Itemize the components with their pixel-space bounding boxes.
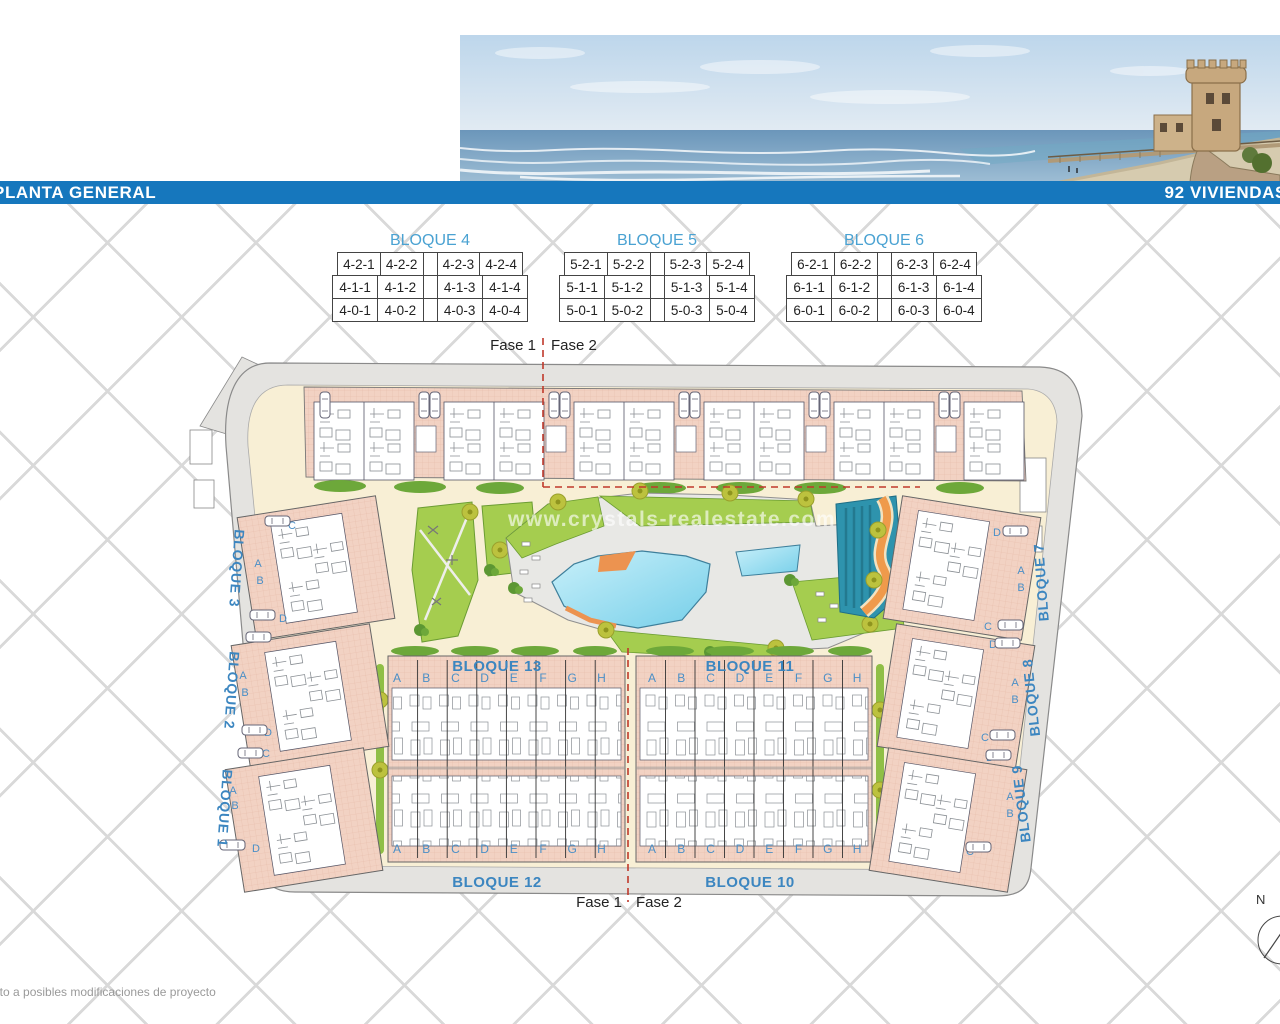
unit-cell: 4-1-4 <box>482 275 528 299</box>
bloque-12-label: BLOQUE 12 <box>452 874 542 891</box>
bloque-1-road-label: BLOQUE 1 <box>214 769 235 848</box>
unit-cell: 6-0-1 <box>786 298 832 322</box>
bloque-13-label: BLOQUE 13 <box>452 658 542 675</box>
unit-cell: 5-1-2 <box>604 275 650 299</box>
unit-cell: 5-0-3 <box>664 298 710 322</box>
unit-cell: 5-0-2 <box>604 298 650 322</box>
unit-letter-d: D <box>736 671 745 685</box>
bloque-5-grid: 5-2-15-2-25-2-35-2-45-1-15-1-25-1-35-1-4… <box>559 252 755 322</box>
townhouse-block-right <box>636 656 872 862</box>
utility-box <box>190 430 212 464</box>
unit-letter-f: F <box>795 671 802 685</box>
fase-1-label-top: Fase 1 <box>490 337 536 354</box>
unit-cell: 4-2-2 <box>380 252 424 276</box>
unit-letter-c: C <box>706 671 715 685</box>
unit-letter-a: A <box>648 842 656 856</box>
svg-text:B: B <box>1017 582 1024 594</box>
unit-letter-d: D <box>480 842 489 856</box>
fase-2-label-top: Fase 2 <box>551 337 597 354</box>
svg-text:D: D <box>252 843 260 855</box>
bloque-4-grid: 4-2-14-2-24-2-34-2-44-1-14-1-24-1-34-1-4… <box>332 252 528 322</box>
unit-letter-b: B <box>422 671 430 685</box>
unit-letter-b: B <box>422 842 430 856</box>
svg-text:B: B <box>256 575 263 587</box>
unit-letter-g: G <box>568 671 577 685</box>
side-block-2 <box>231 624 389 768</box>
unit-cell: 5-1-1 <box>559 275 605 299</box>
unit-letter-g: G <box>823 842 832 856</box>
table-spacer <box>877 252 892 276</box>
table-spacer <box>650 275 665 299</box>
viviendas-count: 92 VIVIENDAS <box>1165 183 1280 203</box>
unit-letter-d: D <box>480 671 489 685</box>
utility-box <box>194 480 214 508</box>
fase-2-label-bottom: Fase 2 <box>636 894 682 911</box>
table-spacer <box>423 252 438 276</box>
unit-cell: 6-0-4 <box>936 298 982 322</box>
phase-labels-bottom: Fase 1 Fase 2 <box>576 894 682 911</box>
table-spacer <box>423 298 438 322</box>
unit-letter-e: E <box>765 671 773 685</box>
table-spacer <box>877 275 892 299</box>
bloque-5-table: BLOQUE 5 5-2-15-2-25-2-35-2-45-1-15-1-25… <box>559 232 755 322</box>
unit-letter-e: E <box>510 842 518 856</box>
unit-letter-f: F <box>539 671 546 685</box>
unit-letter-g: G <box>823 671 832 685</box>
unit-letter-c: C <box>451 671 460 685</box>
unit-cell: 6-2-2 <box>834 252 878 276</box>
unit-letter-f: F <box>539 842 546 856</box>
page-title: PLANTA GENERAL <box>0 183 156 203</box>
site-plan: BLOQUE 13 BLOQUE 11 BLOQUE 12 BLOQUE 10 … <box>170 330 1140 920</box>
unit-letter-b: B <box>677 671 685 685</box>
svg-text:B: B <box>1006 808 1013 820</box>
unit-letter-f: F <box>795 842 802 856</box>
unit-letter-g: G <box>568 842 577 856</box>
unit-cell: 4-1-2 <box>377 275 423 299</box>
unit-cell: 4-0-4 <box>482 298 528 322</box>
unit-cell: 4-0-3 <box>437 298 483 322</box>
unit-cell: 4-2-4 <box>479 252 523 276</box>
unit-cell: 5-0-1 <box>559 298 605 322</box>
unit-letter-b: B <box>677 842 685 856</box>
table-spacer <box>423 275 438 299</box>
unit-cell: 4-2-3 <box>437 252 481 276</box>
unit-letter-a: A <box>393 842 401 856</box>
unit-cell: 6-1-3 <box>891 275 937 299</box>
svg-text:D: D <box>279 613 287 625</box>
unit-cell: 5-2-4 <box>706 252 750 276</box>
unit-cell: 5-2-3 <box>664 252 708 276</box>
unit-letter-h: H <box>853 842 862 856</box>
table-spacer <box>650 298 665 322</box>
unit-letter-a: A <box>648 671 656 685</box>
svg-text:A: A <box>254 558 262 570</box>
bloque-2-road-label: BLOQUE 2 <box>221 651 242 730</box>
unit-letter-h: H <box>597 842 606 856</box>
top-building-strip <box>304 387 1026 481</box>
beach-photo <box>460 35 1280 182</box>
unit-letter-d: D <box>736 842 745 856</box>
svg-text:B: B <box>1011 694 1018 706</box>
unit-cell: 5-0-4 <box>709 298 755 322</box>
unit-cell: 6-0-2 <box>831 298 877 322</box>
unit-cell: 5-1-3 <box>664 275 710 299</box>
townhouse-block-left <box>388 656 625 862</box>
unit-letter-c: C <box>451 842 460 856</box>
compass-north-label: N <box>1256 892 1265 907</box>
svg-text:A: A <box>1017 565 1025 577</box>
svg-text:D: D <box>993 527 1001 539</box>
compass: N <box>1250 890 1280 970</box>
unit-cell: 4-1-3 <box>437 275 483 299</box>
bloque-4-table: BLOQUE 4 4-2-14-2-24-2-34-2-44-1-14-1-24… <box>332 232 528 322</box>
fase-1-label-bottom: Fase 1 <box>576 894 622 911</box>
side-block-1 <box>225 748 383 892</box>
unit-cell: 5-1-4 <box>709 275 755 299</box>
bloque-5-title: BLOQUE 5 <box>559 232 755 250</box>
bloque-10-label: BLOQUE 10 <box>705 874 795 891</box>
unit-letter-c: C <box>706 842 715 856</box>
side-block-9 <box>869 748 1027 892</box>
bloque-11-label: BLOQUE 11 <box>706 658 795 675</box>
unit-cell: 6-2-3 <box>891 252 935 276</box>
title-bar: PLANTA GENERAL 92 VIVIENDAS <box>0 181 1280 204</box>
unit-cell: 6-2-1 <box>791 252 835 276</box>
footnote: eto a posibles modificaciones de proyect… <box>0 985 216 999</box>
svg-text:A: A <box>1011 677 1019 689</box>
unit-cell: 4-2-1 <box>337 252 381 276</box>
unit-cell: 5-2-1 <box>564 252 608 276</box>
unit-letter-e: E <box>510 671 518 685</box>
unit-cell: 6-1-1 <box>786 275 832 299</box>
unit-cell: 4-0-1 <box>332 298 378 322</box>
unit-letter-h: H <box>853 671 862 685</box>
table-spacer <box>650 252 665 276</box>
unit-cell: 4-0-2 <box>377 298 423 322</box>
unit-cell: 6-1-2 <box>831 275 877 299</box>
svg-text:B: B <box>241 687 248 699</box>
unit-cell: 6-2-4 <box>933 252 977 276</box>
unit-cell: 6-0-3 <box>891 298 937 322</box>
watermark: www.crystals-realestate.com <box>507 508 836 531</box>
bloque-6-table: BLOQUE 6 6-2-16-2-26-2-36-2-46-1-16-1-26… <box>786 232 982 322</box>
table-spacer <box>877 298 892 322</box>
bloque-6-grid: 6-2-16-2-26-2-36-2-46-1-16-1-26-1-36-1-4… <box>786 252 982 322</box>
unit-letter-e: E <box>765 842 773 856</box>
bloque-4-title: BLOQUE 4 <box>332 232 528 250</box>
compass-needle <box>1264 926 1280 958</box>
unit-cell: 4-1-1 <box>332 275 378 299</box>
unit-cell: 5-2-2 <box>607 252 651 276</box>
unit-letter-a: A <box>393 671 401 685</box>
unit-letter-h: H <box>597 671 606 685</box>
unit-cell: 6-1-4 <box>936 275 982 299</box>
svg-text:C: C <box>984 621 992 633</box>
svg-text:C: C <box>981 732 989 744</box>
bloque-6-title: BLOQUE 6 <box>786 232 982 250</box>
